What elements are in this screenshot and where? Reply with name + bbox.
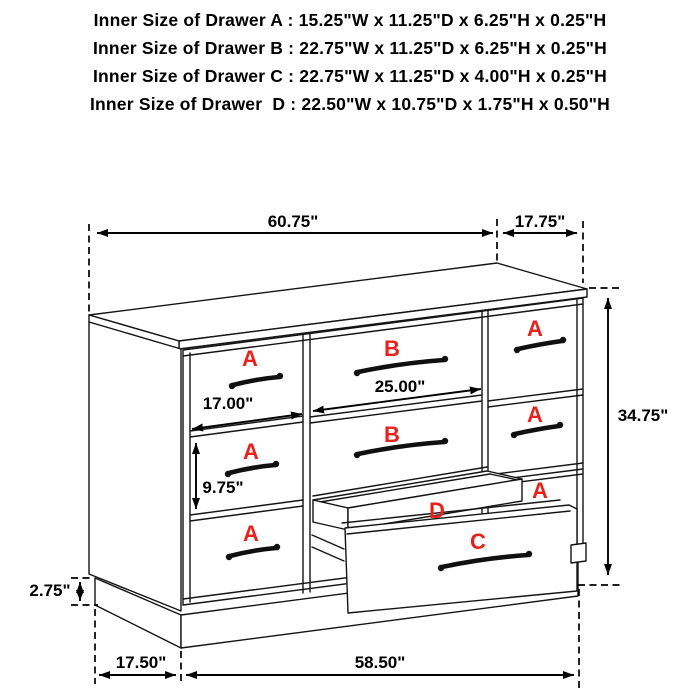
drawer-a3-left-label: A bbox=[243, 521, 259, 546]
dim-overall-width-text: 60.75" bbox=[268, 212, 319, 231]
drawer-b2-label: B bbox=[384, 422, 400, 447]
drawer-d-label: D bbox=[429, 498, 445, 523]
dim-base-side-depth-text: 17.50" bbox=[116, 653, 167, 672]
dresser-dimension-diagram: Inner Size of Drawer A : 15.25"W x 11.25… bbox=[0, 0, 700, 700]
dresser-left-side-panel bbox=[89, 322, 181, 611]
dim-small-drawer-width-text: 17.00" bbox=[203, 394, 254, 413]
drawer-a2-right-label: A bbox=[527, 402, 543, 427]
drawer-b1-label: B bbox=[384, 336, 400, 361]
drawer-a1-left-label: A bbox=[242, 346, 258, 371]
dim-overall-depth-text: 17.75" bbox=[515, 212, 566, 231]
drawer-a2-left-label: A bbox=[243, 439, 259, 464]
dim-lower-section-height-text: 9.75" bbox=[202, 478, 243, 497]
dim-base-height: 2.75" bbox=[29, 578, 98, 605]
dim-base-height-text: 2.75" bbox=[29, 581, 70, 600]
right-foot-block bbox=[571, 543, 586, 563]
dim-overall-height-text: 34.75" bbox=[618, 406, 669, 425]
dim-large-drawer-width-text: 25.00" bbox=[375, 377, 426, 396]
drawer-a3-right-label: A bbox=[532, 478, 548, 503]
drawer-c-label: C bbox=[470, 529, 486, 554]
dresser-line-drawing: A A A B B A A A C D 60.75" 17.75" bbox=[0, 0, 700, 700]
dim-overall-height: 34.75" bbox=[578, 288, 668, 585]
drawer-a1-right-label: A bbox=[527, 316, 543, 341]
dim-base-front-width-text: 58.50" bbox=[355, 653, 406, 672]
